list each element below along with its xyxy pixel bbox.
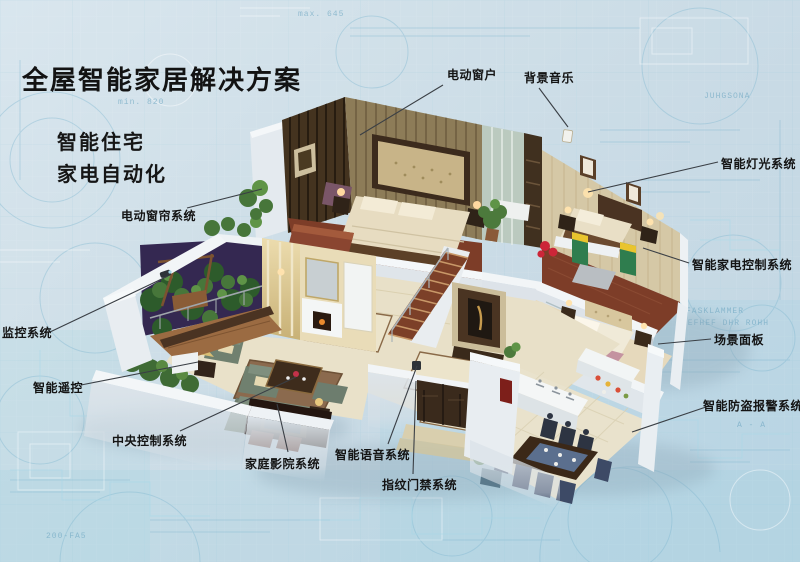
callout-scene-panel: 场景面板 (714, 331, 764, 348)
callout-line-scene-panel (658, 339, 711, 344)
callout-line-background-music (539, 88, 568, 127)
callout-line-electric-window (360, 85, 443, 135)
callout-home-theater: 家庭影院系统 (245, 455, 320, 472)
callout-line-monitoring (50, 276, 168, 332)
callout-electric-curtain: 电动窗帘系统 (121, 207, 196, 224)
subtitle-line-1: 智能住宅 (57, 126, 145, 155)
callout-burglar-alarm: 智能防盗报警系统 (703, 397, 800, 414)
callout-smart-lighting: 智能灯光系统 (721, 155, 796, 172)
page-title: 全屋智能家居解决方案 (22, 60, 302, 97)
callout-line-smart-remote (81, 362, 198, 385)
callout-monitoring: 监控系统 (2, 324, 52, 341)
callout-line-fingerprint-access (413, 381, 416, 474)
callout-fingerprint-access: 指纹门禁系统 (382, 476, 457, 493)
callout-line-appliance-control (643, 248, 689, 263)
callout-smart-remote: 智能遥控 (33, 379, 83, 396)
poster: min. 820max. 645JUHGSONAFASKLAMMERGEFHEF… (0, 0, 800, 562)
callout-electric-window: 电动窗户 (447, 66, 497, 83)
callout-central-control: 中央控制系统 (112, 432, 187, 449)
callout-line-voice-system (388, 366, 417, 444)
callout-appliance-control: 智能家电控制系统 (692, 256, 792, 273)
callout-line-smart-lighting (588, 162, 718, 192)
subtitle-line-2: 家电自动化 (57, 158, 167, 187)
callout-line-burglar-alarm (632, 407, 706, 432)
callout-background-music: 背景音乐 (524, 69, 574, 86)
callout-voice-system: 智能语音系统 (335, 446, 410, 463)
callout-line-electric-curtain (187, 189, 262, 208)
callout-line-central-control (180, 377, 296, 431)
callout-line-home-theater (277, 404, 288, 452)
